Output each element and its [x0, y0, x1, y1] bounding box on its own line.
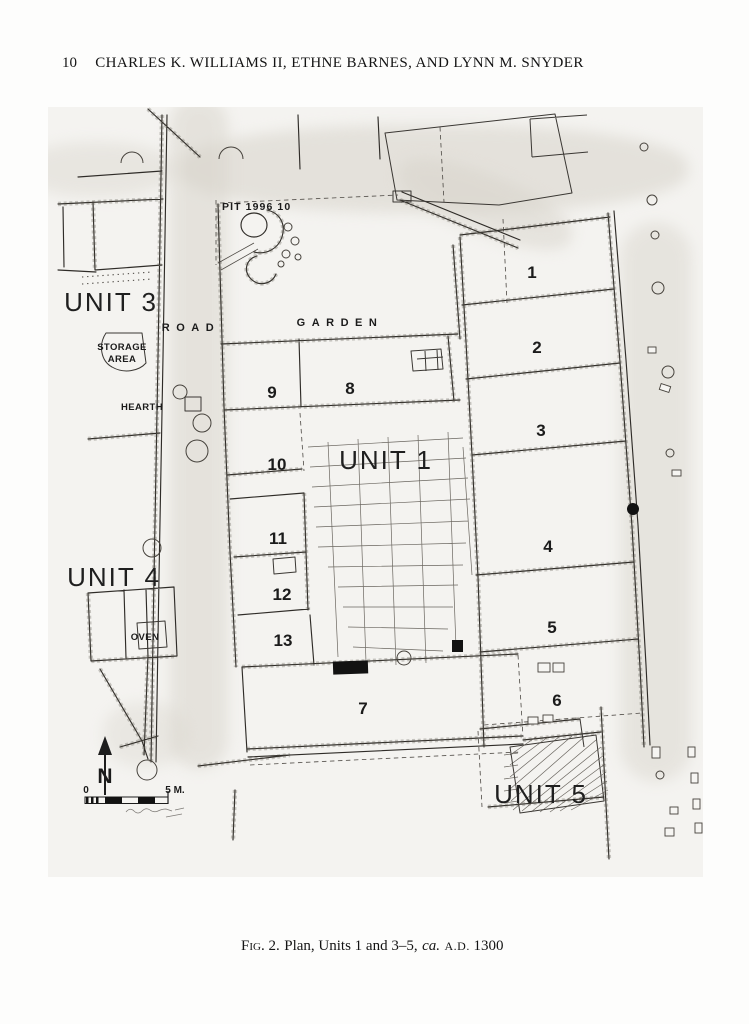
oven-label: OVEN — [131, 632, 160, 643]
scale-bar: 0 5 M. — [83, 785, 185, 817]
caption-body: Plan, Units 1 and 3–5, — [284, 938, 417, 954]
room-7-label: 7 — [358, 699, 367, 718]
pit-stone-arc — [246, 210, 283, 284]
storage-area-label-line2: AREA — [108, 354, 137, 365]
north-arrow-icon: N — [97, 736, 112, 795]
scale-zero-label: 0 — [83, 785, 89, 796]
room-8-label: 8 — [345, 379, 354, 398]
plan-drawing: N 0 5 M. UNIT 3 UNIT 4 UNIT 1 UNIT 5 ROA… — [48, 107, 703, 877]
room-13-label: 13 — [274, 631, 293, 650]
caption-era: A.D. — [445, 939, 470, 953]
page-header: 10 CHARLES K. WILLIAMS II, ETHNE BARNES,… — [0, 55, 749, 75]
surveyor-signature — [126, 808, 184, 817]
unit-5-label: UNIT 5 — [494, 779, 588, 809]
pit-stone-arc-texture — [246, 210, 283, 284]
storage-area-label-line1: STORAGE — [97, 342, 147, 353]
plan-figure: N 0 5 M. UNIT 3 UNIT 4 UNIT 1 UNIT 5 ROA… — [48, 107, 703, 877]
unit-3-label: UNIT 3 — [64, 287, 158, 317]
pit-stone-cluster — [278, 223, 301, 267]
plan-walls — [58, 109, 650, 859]
plan-thin-lines — [218, 243, 258, 270]
caption-year: 1300 — [473, 938, 503, 954]
room-10-label: 10 — [268, 455, 287, 474]
room-4-label: 4 — [543, 537, 553, 556]
room-6-label: 6 — [552, 691, 561, 710]
figure-caption: Fig. 2.Plan, Units 1 and 3–5,ca.A.D.1300 — [0, 938, 749, 955]
unit-1-label: UNIT 1 — [339, 445, 433, 475]
room-12-label: 12 — [273, 585, 292, 604]
scale-end-label: 5 M. — [165, 785, 185, 796]
garden-label: GARDEN — [297, 317, 384, 329]
north-label: N — [97, 765, 112, 788]
plan-wall-stones — [58, 109, 644, 859]
room-11-label: 11 — [269, 529, 287, 548]
running-head: CHARLES K. WILLIAMS II, ETHNE BARNES, AN… — [0, 55, 679, 72]
marker-dot — [627, 503, 639, 515]
road-label: ROAD — [162, 322, 220, 334]
room-3-label: 3 — [536, 421, 545, 440]
pit-feature — [241, 213, 267, 237]
caption-circa: ca. — [422, 938, 440, 954]
plan-dotted-trail — [82, 272, 152, 284]
pit-label: PIT 1996 10 — [222, 201, 291, 213]
room-9-label: 9 — [267, 383, 276, 402]
room-2-label: 2 — [532, 338, 541, 357]
room-5-label: 5 — [547, 618, 556, 637]
hearth-label: HEARTH — [121, 402, 163, 413]
stone-blocks — [528, 347, 702, 836]
hearth-feature — [333, 660, 368, 674]
unit-4-label: UNIT 4 — [67, 562, 161, 592]
marker-square — [452, 640, 463, 652]
caption-fig-label: Fig. 2. — [241, 938, 280, 954]
room-1-label: 1 — [527, 263, 536, 282]
